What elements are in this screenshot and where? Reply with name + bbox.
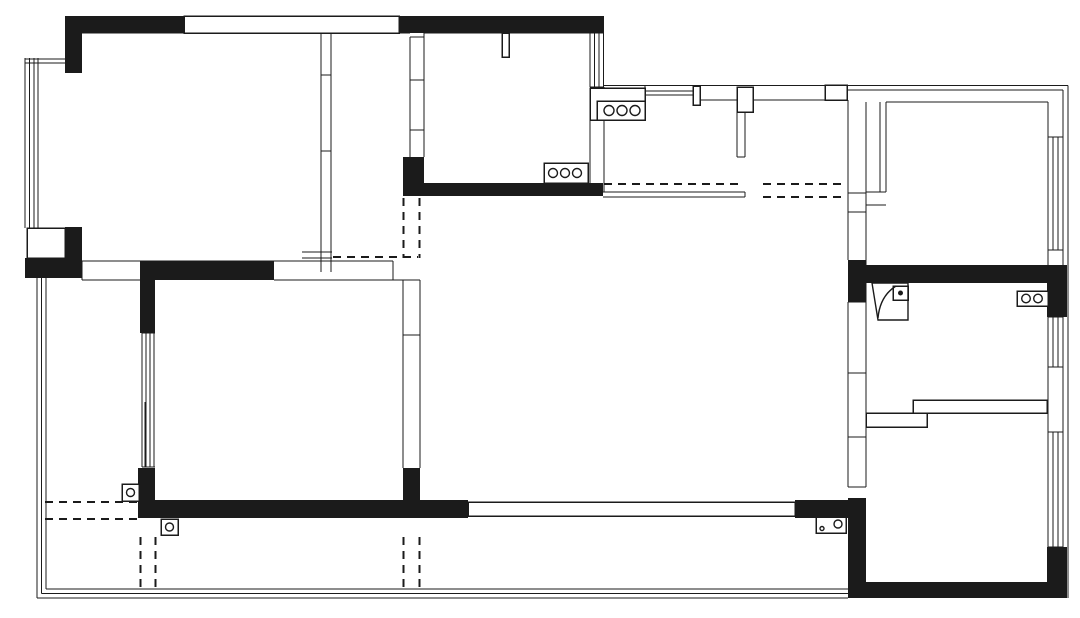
structural-wall xyxy=(848,265,1067,283)
structural-wall xyxy=(65,16,82,73)
structural-wall xyxy=(65,16,184,33)
pipe-icon xyxy=(127,489,135,497)
pipe-icon xyxy=(834,520,842,528)
burner-icon xyxy=(604,106,614,116)
structural-wall xyxy=(795,500,850,518)
drain-dot-icon xyxy=(899,291,903,295)
burner-icon xyxy=(630,106,640,116)
structural-wall xyxy=(1047,265,1067,317)
wall-pier-icon xyxy=(693,86,700,105)
wall-pier-icon xyxy=(825,85,847,100)
wall-pier-icon xyxy=(737,87,753,112)
bath-wall-step-icon xyxy=(913,400,1047,413)
burner-icon xyxy=(549,169,558,178)
floor-plan-page xyxy=(0,0,1080,618)
floor-plan-canvas xyxy=(0,0,1080,618)
structural-wall xyxy=(848,582,1067,598)
structural-wall xyxy=(140,261,155,333)
bay-window-sill-icon xyxy=(27,228,65,258)
washer-drum-icon xyxy=(1022,294,1031,303)
wall-stub-icon xyxy=(502,33,509,57)
burner-icon xyxy=(617,106,627,116)
burner-icon xyxy=(573,169,582,178)
structural-wall xyxy=(403,468,420,518)
burner-icon xyxy=(561,169,570,178)
sliding-door-icon xyxy=(468,502,795,516)
structural-wall xyxy=(25,258,82,278)
structural-wall xyxy=(1047,547,1067,598)
pipe-small-icon xyxy=(820,527,824,531)
window-band-icon xyxy=(184,16,399,33)
structural-wall xyxy=(140,261,274,280)
bath-wall-step-icon xyxy=(866,413,927,427)
washer-drum-icon xyxy=(1034,294,1043,303)
pipe-icon xyxy=(166,523,174,531)
structural-wall xyxy=(399,16,604,33)
structural-wall xyxy=(403,183,603,196)
